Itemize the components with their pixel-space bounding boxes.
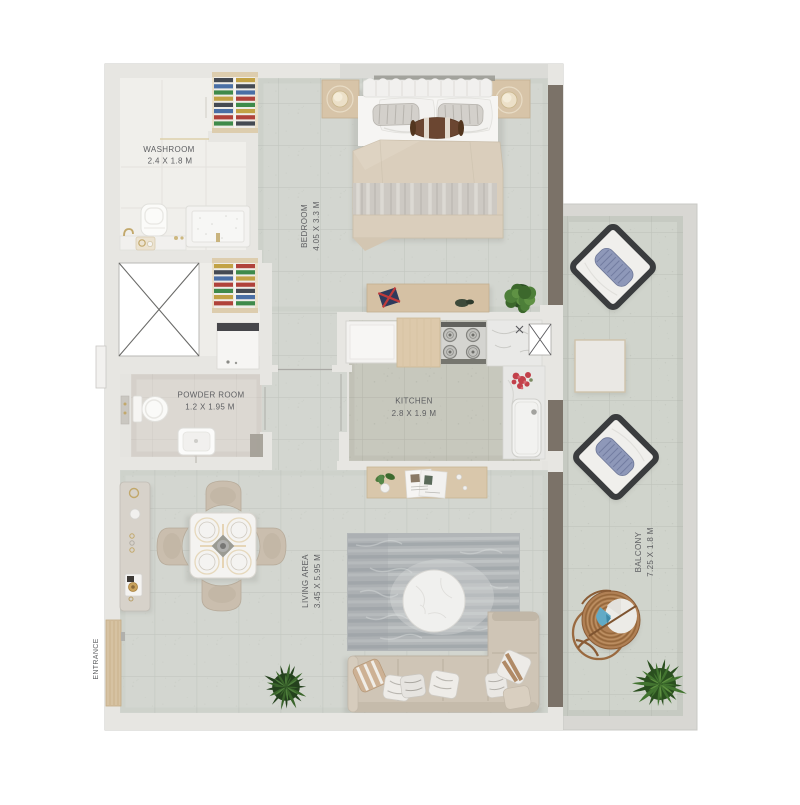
svg-text:3.45 X 5.95 M: 3.45 X 5.95 M [313, 554, 322, 608]
svg-text:KITCHEN: KITCHEN [395, 397, 433, 406]
svg-text:POWDER ROOM: POWDER ROOM [178, 390, 245, 399]
svg-text:2.8 X 1.9 M: 2.8 X 1.9 M [392, 409, 437, 418]
svg-text:WASHROOM: WASHROOM [143, 145, 194, 154]
svg-text:ENTRANCE: ENTRANCE [93, 638, 100, 679]
svg-text:2.4 X 1.8 M: 2.4 X 1.8 M [148, 157, 193, 166]
svg-text:7.25 X 1.8 M: 7.25 X 1.8 M [646, 527, 655, 577]
svg-text:LIVING AREA: LIVING AREA [301, 554, 310, 608]
svg-text:BALCONY: BALCONY [634, 531, 643, 572]
svg-text:4.05 X 3.3 M: 4.05 X 3.3 M [312, 201, 321, 251]
svg-text:1.2 X 1.95 M: 1.2 X 1.95 M [185, 403, 235, 412]
svg-text:BEDROOM: BEDROOM [300, 204, 309, 248]
